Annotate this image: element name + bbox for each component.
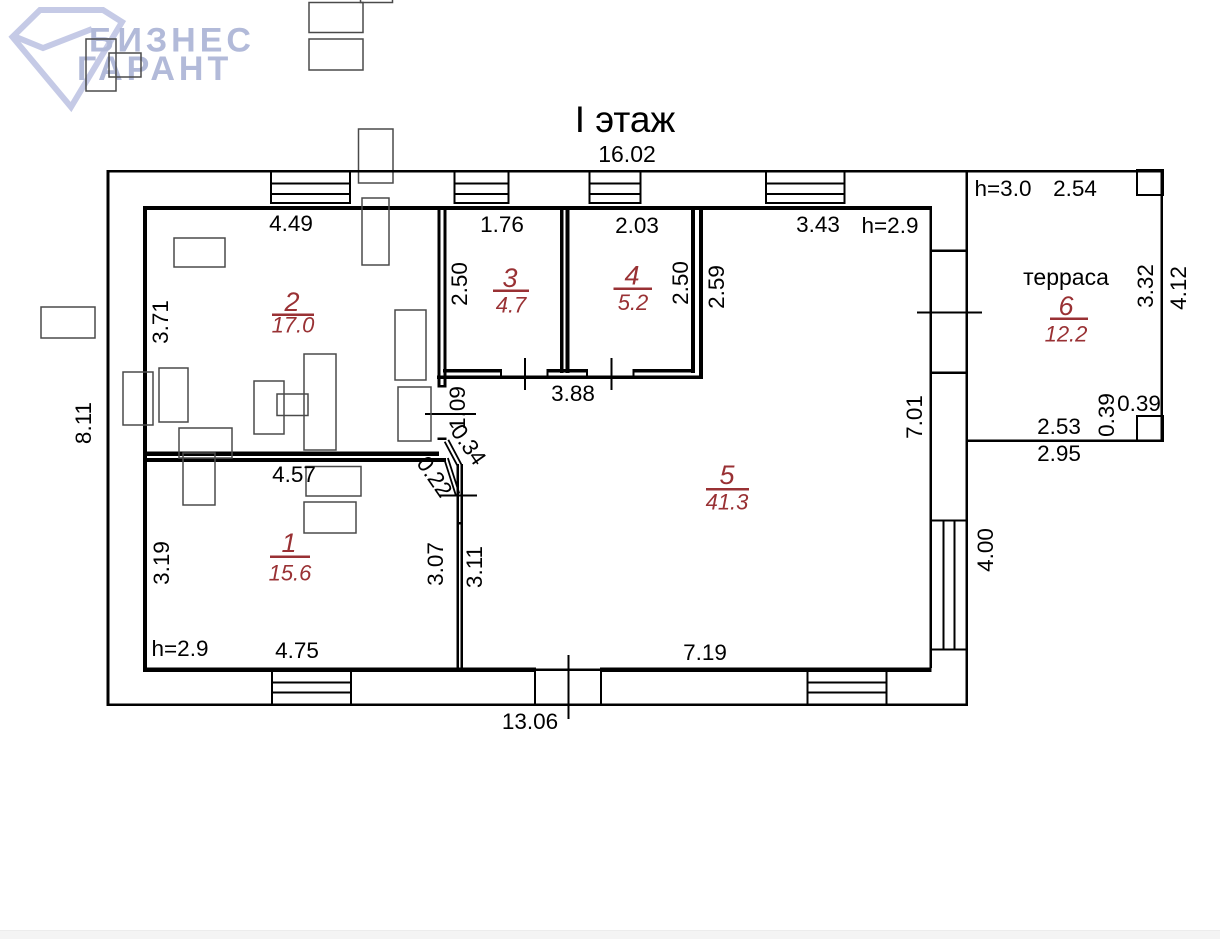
svg-text:3.11: 3.11 — [462, 546, 487, 588]
svg-text:4.57: 4.57 — [272, 462, 316, 487]
svg-text:2.03: 2.03 — [615, 213, 659, 238]
svg-text:5.2: 5.2 — [618, 290, 649, 315]
svg-text:4.49: 4.49 — [269, 211, 313, 236]
svg-text:h=3.0: h=3.0 — [975, 176, 1032, 201]
svg-text:ГАРАНТ: ГАРАНТ — [77, 50, 232, 88]
svg-text:4.00: 4.00 — [973, 528, 998, 572]
svg-text:4.75: 4.75 — [275, 638, 319, 663]
svg-text:3.32: 3.32 — [1133, 264, 1158, 308]
svg-text:2.59: 2.59 — [704, 265, 729, 309]
svg-text:4.12: 4.12 — [1166, 266, 1191, 310]
svg-text:1: 1 — [281, 528, 296, 558]
svg-text:3.88: 3.88 — [551, 381, 595, 406]
svg-text:терраса: терраса — [1023, 264, 1109, 290]
svg-text:I этаж: I этаж — [575, 99, 676, 140]
svg-text:3: 3 — [502, 263, 517, 293]
svg-text:41.3: 41.3 — [706, 490, 750, 515]
svg-text:h=2.9: h=2.9 — [862, 213, 919, 238]
svg-text:15.6: 15.6 — [269, 561, 313, 586]
svg-text:3.43: 3.43 — [796, 212, 840, 237]
svg-text:1.76: 1.76 — [480, 212, 524, 237]
svg-text:7.19: 7.19 — [683, 640, 727, 665]
svg-text:2.53: 2.53 — [1037, 414, 1081, 439]
svg-text:17.0: 17.0 — [272, 313, 316, 338]
svg-text:4: 4 — [624, 261, 639, 291]
svg-text:3.07: 3.07 — [423, 542, 448, 586]
svg-text:3.19: 3.19 — [149, 541, 174, 585]
svg-text:2.50: 2.50 — [447, 262, 472, 306]
svg-text:8.11: 8.11 — [71, 402, 96, 444]
svg-text:5: 5 — [719, 460, 735, 490]
svg-text:3.71: 3.71 — [148, 300, 173, 344]
svg-text:12.2: 12.2 — [1045, 322, 1088, 347]
svg-text:0.39: 0.39 — [1094, 393, 1119, 437]
svg-text:13.06: 13.06 — [502, 709, 558, 734]
svg-text:6: 6 — [1058, 291, 1074, 321]
svg-text:4.7: 4.7 — [496, 293, 527, 318]
svg-text:h=2.9: h=2.9 — [152, 636, 209, 661]
svg-text:16.02: 16.02 — [598, 141, 656, 167]
svg-text:0.39: 0.39 — [1117, 391, 1161, 416]
svg-text:7.01: 7.01 — [902, 395, 927, 439]
svg-text:2.54: 2.54 — [1053, 176, 1097, 201]
svg-text:2.50: 2.50 — [668, 261, 693, 305]
svg-text:2.95: 2.95 — [1037, 441, 1081, 466]
